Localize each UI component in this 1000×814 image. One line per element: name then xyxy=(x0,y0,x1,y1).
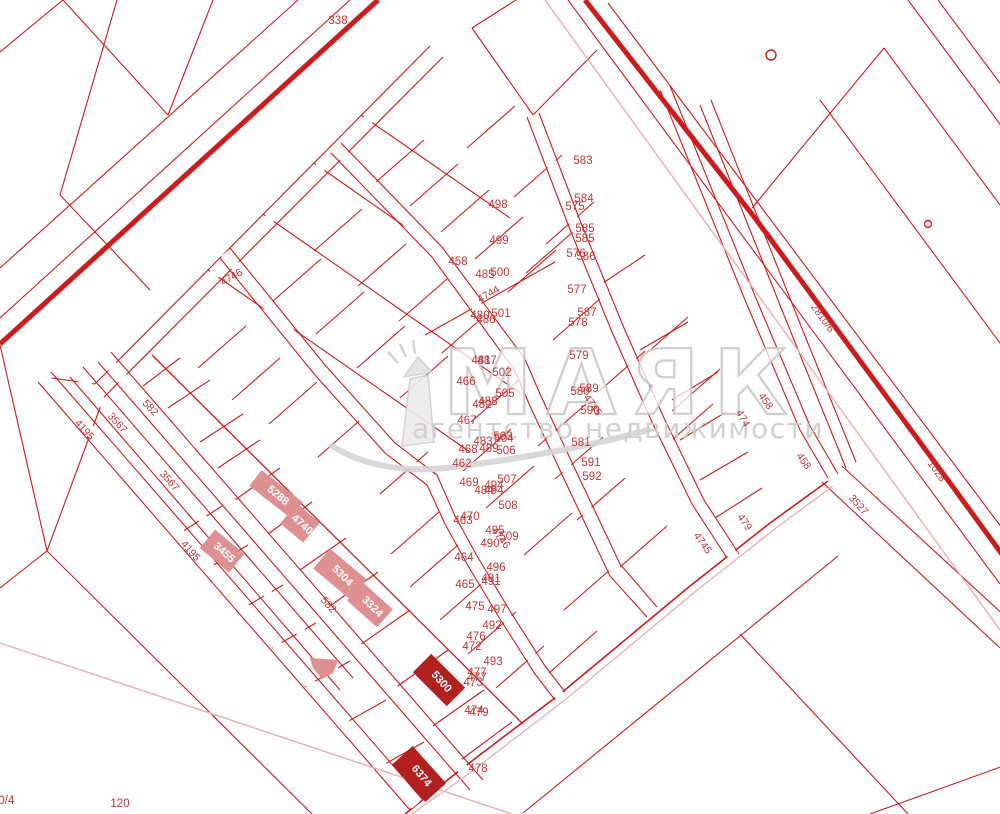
parcel-label: 476 xyxy=(466,631,485,643)
parcel-label: 496 xyxy=(486,562,505,574)
parcel-label: 470 xyxy=(460,511,479,523)
parcel-label: 581 xyxy=(571,437,590,449)
parcel-label: 506 xyxy=(496,445,515,457)
parcel-label: 500 xyxy=(490,267,509,279)
parcel-label: 478 xyxy=(468,763,487,775)
parcel-label: 462 xyxy=(452,458,471,470)
parcel-label: 464 xyxy=(454,552,474,564)
parcel-label: 338 xyxy=(328,15,347,27)
parcel-label: 507 xyxy=(497,474,516,486)
parcel-label: 466 xyxy=(456,376,475,388)
parcel-label: 477 xyxy=(467,672,486,684)
cadastral-map-viewport[interactable]: МАЯКагентство недвижимости52884740345553… xyxy=(0,0,1000,814)
parcel-label: 479 xyxy=(469,707,488,719)
cadastral-map[interactable]: МАЯКагентство недвижимости52884740345553… xyxy=(0,0,1000,814)
parcel-label: 487 xyxy=(477,355,496,367)
parcel-label: 493 xyxy=(483,656,502,668)
parcel-label: 467 xyxy=(457,415,476,427)
parcel-label: 475 xyxy=(465,601,484,613)
parcel-label: 579 xyxy=(569,350,588,362)
parcel-label: 498 xyxy=(488,199,507,211)
parcel-label: 492 xyxy=(482,620,501,632)
parcel-label: 577 xyxy=(567,284,586,296)
parcel-label: 576 xyxy=(566,248,585,260)
parcel-label: 575 xyxy=(565,201,584,213)
parcel-label: 491 xyxy=(481,573,500,585)
parcel-label: 578 xyxy=(568,317,587,329)
parcel-label: 120/4 xyxy=(0,795,15,807)
parcel-label: 591 xyxy=(581,457,600,469)
parcel-label: 499 xyxy=(489,235,508,247)
parcel-label: 583 xyxy=(573,155,592,167)
parcel-label: 505 xyxy=(495,388,514,400)
parcel-label: 494 xyxy=(484,485,504,497)
parcel-label: 497 xyxy=(487,604,506,616)
parcel-label: 508 xyxy=(498,500,517,512)
parcel-label: 465 xyxy=(455,579,474,591)
parcel-label: 502 xyxy=(492,367,511,379)
parcel-label: 120 xyxy=(110,798,129,810)
parcel-label: 501 xyxy=(491,308,510,320)
parcel-label: 592 xyxy=(582,471,601,483)
parcel-label: 504 xyxy=(494,433,514,445)
parcel-label: 458 xyxy=(448,256,467,268)
parcel-label: 585 xyxy=(575,233,594,245)
